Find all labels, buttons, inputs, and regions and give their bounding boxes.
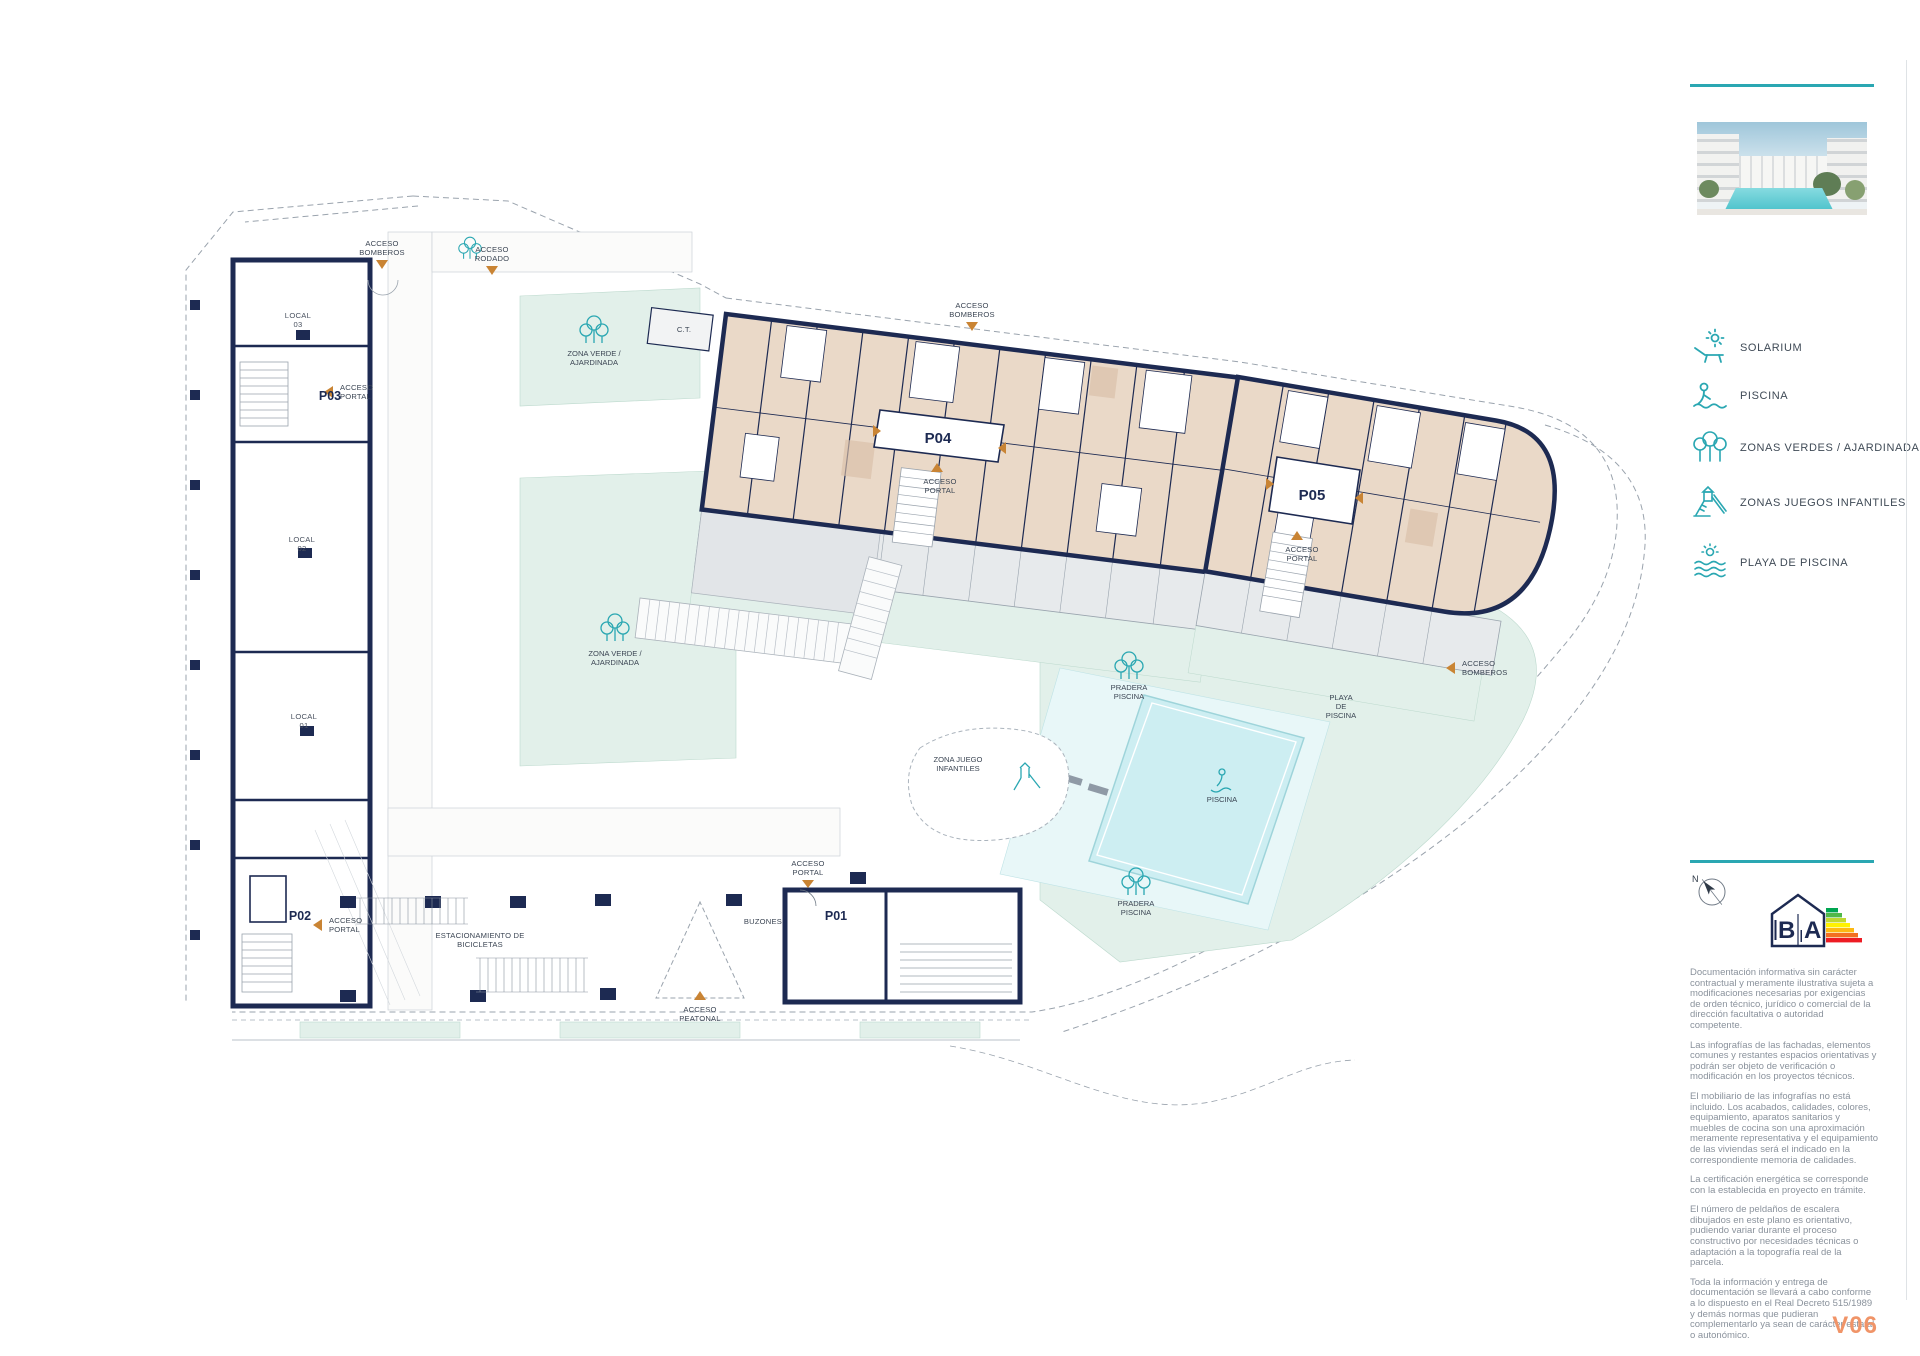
legend-label: SOLARIUM: [1740, 342, 1802, 354]
disclaimer-paragraph: Las infografías de las fachadas, element…: [1690, 1041, 1878, 1083]
project-render-photo: [1697, 122, 1867, 215]
acceso-bomberos-3-l1: ACCESO: [1462, 659, 1495, 668]
energy-letter-b: B: [1778, 917, 1795, 944]
playa-l1: PLAYA: [1329, 693, 1353, 702]
acceso-portal-p05-l1: ACCESO: [1285, 545, 1318, 554]
acceso-portal-p02-l1: ACCESO: [329, 916, 362, 925]
acceso-bomberos-2-l2: BOMBEROS: [949, 310, 994, 319]
acceso-portal-p02-l2: PORTAL: [329, 925, 360, 934]
acceso-portal-p01-l1: ACCESO: [791, 859, 824, 868]
local-02-l2: 02: [297, 544, 306, 553]
playa-l3: PISCINA: [1326, 711, 1357, 720]
local-02-l1: LOCAL: [289, 535, 315, 544]
photo-pool: [1725, 188, 1833, 210]
photo-tree: [1699, 180, 1719, 198]
playa-piscina-icon: [1690, 543, 1730, 583]
bicicletas-l1: ESTACIONAMIENTO DE: [436, 931, 525, 940]
disclaimer-paragraph: Documentación informativa sin carácter c…: [1690, 968, 1878, 1032]
local-03-l1: LOCAL: [285, 311, 311, 320]
acceso-portal-p04-l2: PORTAL: [925, 486, 956, 495]
zona-juego-l1: ZONA JUEGO: [934, 755, 983, 764]
acceso-rodado-l1: ACCESO: [475, 245, 508, 254]
local-01-l2: 01: [299, 721, 308, 730]
acceso-peatonal-l2: PEATONAL: [679, 1014, 720, 1023]
north-compass-icon: N: [1688, 872, 1732, 912]
acceso-portal-p03-l1: ACCESO: [340, 383, 373, 392]
panel-divider-top: [1690, 84, 1874, 87]
acceso-portal-p01-l2: PORTAL: [793, 868, 824, 877]
legend-item-playa: PLAYA DE PISCINA: [1690, 543, 1848, 583]
site-plan-drawing: P04 P05: [0, 0, 1920, 1356]
acceso-peatonal-l1: ACCESO: [683, 1005, 716, 1014]
local-03-l2: 03: [293, 320, 302, 329]
legend-item-juegos: ZONAS JUEGOS INFANTILES: [1690, 483, 1906, 523]
buzones-label: BUZONES: [744, 917, 782, 926]
pradera-1-l2: PISCINA: [1114, 692, 1145, 701]
piscina-label: PISCINA: [1207, 795, 1238, 804]
energy-letter-a: A: [1804, 917, 1821, 944]
local-01-l1: LOCAL: [291, 712, 317, 721]
ct-label: C.T.: [677, 325, 691, 334]
zona-juego-l2: INFANTILES: [936, 764, 979, 773]
energy-certificate-icon: B A: [1764, 890, 1864, 952]
floor-plan-sheet: P04 P05: [0, 0, 1920, 1356]
sheet-edge-line: [1906, 60, 1907, 1300]
legend-label: PLAYA DE PISCINA: [1740, 557, 1848, 569]
energy-scale-bars: [1826, 908, 1862, 942]
disclaimer-paragraph: El mobiliario de las infografías no está…: [1690, 1092, 1878, 1166]
legend-label: PISCINA: [1740, 390, 1788, 402]
zona-verde-1-l1: ZONA VERDE /: [567, 349, 621, 358]
disclaimer-paragraph: La certificación energética se correspon…: [1690, 1175, 1878, 1196]
pradera-1-l1: PRADERA: [1111, 683, 1149, 692]
acceso-bomberos-3-l2: BOMBEROS: [1462, 668, 1507, 677]
disclaimer-paragraph: El número de peldaños de escalera dibuja…: [1690, 1205, 1878, 1269]
compass-n-label: N: [1692, 874, 1699, 884]
solarium-icon: [1690, 328, 1730, 368]
zonas-verdes-icon: [1690, 428, 1730, 468]
legend-item-piscina: PISCINA: [1690, 376, 1788, 416]
portal-p03-label: P03: [319, 389, 341, 403]
portal-p01-building: [785, 890, 1020, 1002]
photo-deck: [1697, 209, 1867, 215]
legend-label: ZONAS JUEGOS INFANTILES: [1740, 497, 1906, 509]
left-building: [190, 260, 370, 1006]
portal-p05-label: P05: [1299, 487, 1326, 504]
portal-p02-label: P02: [289, 909, 311, 923]
version-label: V06: [1770, 1312, 1878, 1340]
zona-verde-2-l1: ZONA VERDE /: [588, 649, 642, 658]
portal-p01-label: P01: [825, 909, 847, 923]
zona-verde-1-l2: AJARDINADA: [570, 358, 619, 367]
playa-l2: DE: [1336, 702, 1347, 711]
acceso-portal-p05-l2: PORTAL: [1287, 554, 1318, 563]
piscina-icon: [1690, 376, 1730, 416]
legend-label: ZONAS VERDES / AJARDINADAS: [1740, 442, 1920, 454]
juegos-infantiles-icon: [1690, 483, 1730, 523]
acceso-rodado-l2: RODADO: [475, 254, 510, 263]
playground-area: [908, 728, 1068, 840]
acceso-portal-p04-l1: ACCESO: [923, 477, 956, 486]
acceso-bomberos-1-l2: BOMBEROS: [359, 248, 404, 257]
acceso-portal-p03-l2: PORTAL: [340, 392, 371, 401]
disclaimer-text: Documentación informativa sin carácter c…: [1690, 968, 1878, 1350]
pradera-2-l1: PRADERA: [1118, 899, 1156, 908]
panel-divider-bottom: [1690, 860, 1874, 863]
portal-p04-label: P04: [925, 430, 952, 447]
bicicletas-l2: BICICLETAS: [457, 940, 503, 949]
zona-verde-2-l2: AJARDINADA: [591, 658, 640, 667]
photo-tree: [1845, 180, 1865, 200]
legend-item-solarium: SOLARIUM: [1690, 328, 1802, 368]
acceso-bomberos-1-l1: ACCESO: [365, 239, 398, 248]
legend-item-zonas-verdes: ZONAS VERDES / AJARDINADAS: [1690, 428, 1920, 468]
acceso-bomberos-2-l1: ACCESO: [955, 301, 988, 310]
pradera-2-l2: PISCINA: [1121, 908, 1152, 917]
